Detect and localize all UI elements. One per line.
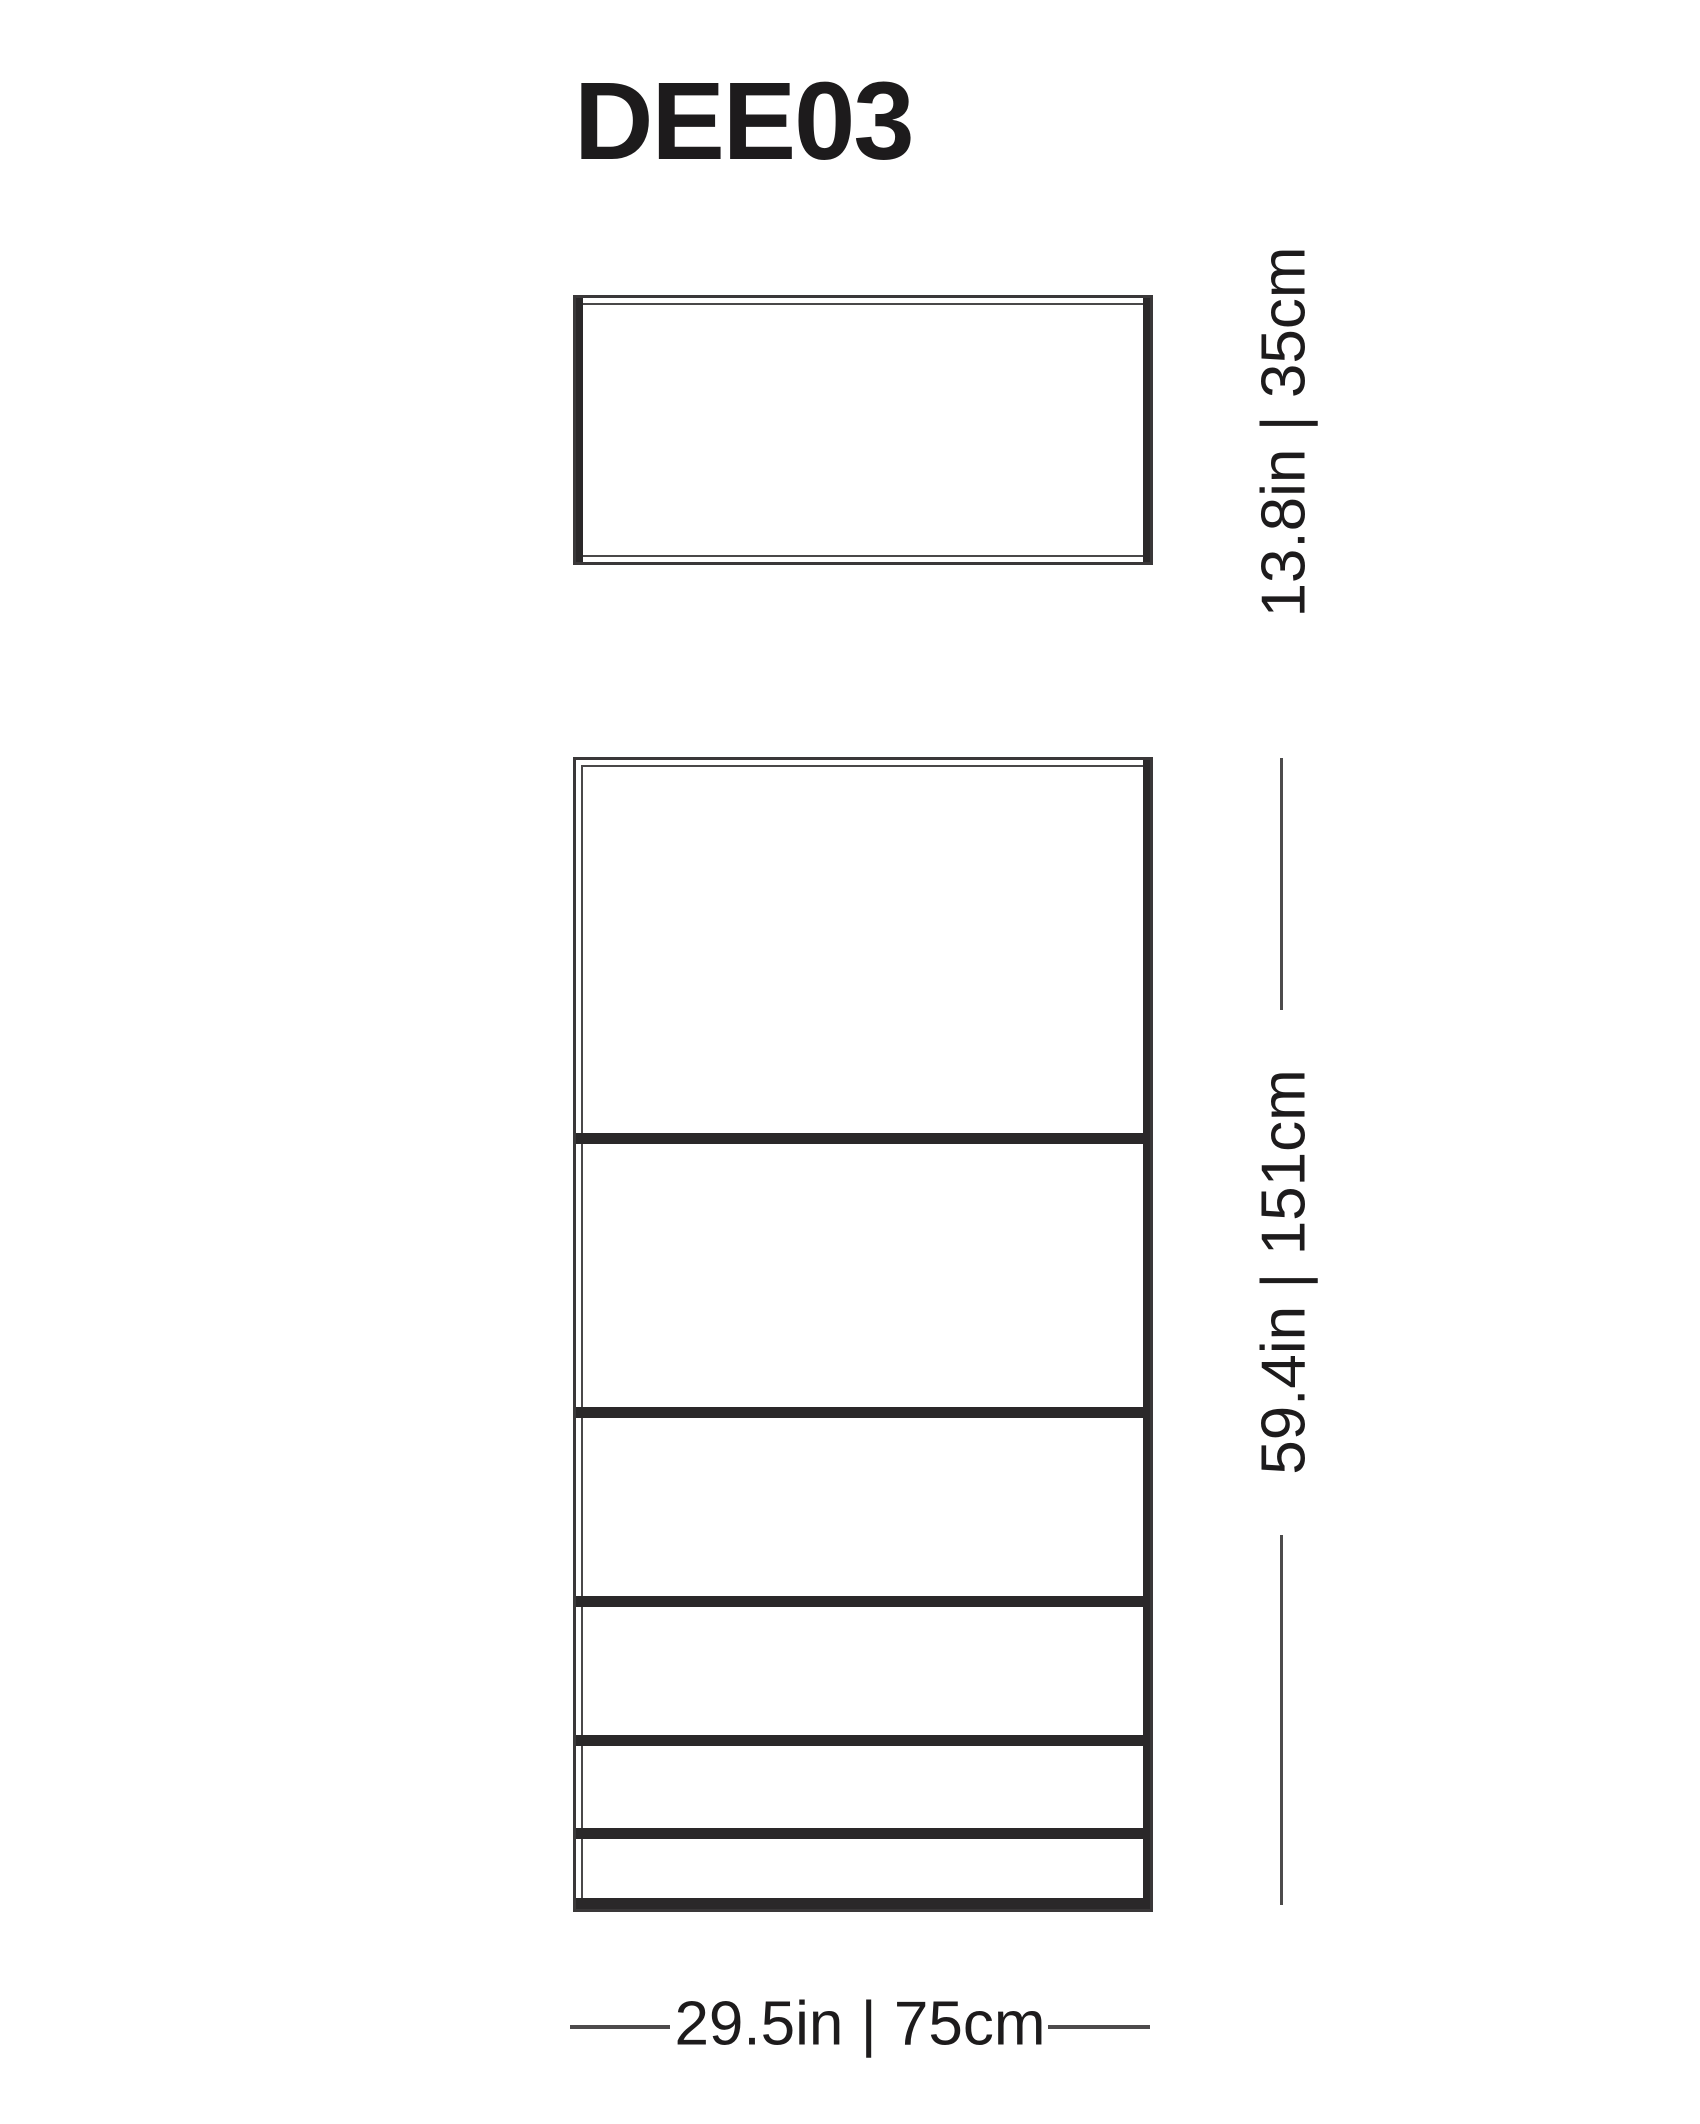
shelf-divider <box>576 1133 1150 1144</box>
top-view-left-panel <box>576 298 583 562</box>
shelf-divider <box>576 1407 1150 1418</box>
front-view-inner-rect <box>581 765 1145 1904</box>
page-title: DEE03 <box>574 58 913 185</box>
top-view-inner-top-line <box>583 303 1143 305</box>
height-dimension-line-lower <box>1280 1535 1283 1905</box>
width-dimension-dash-left <box>570 2025 670 2029</box>
width-dimension-dash-right <box>1048 2025 1150 2029</box>
shelf-divider <box>576 1596 1150 1607</box>
top-view-right-panel <box>1143 298 1150 562</box>
depth-dimension-label: 13.8in | 35cm <box>1249 246 1320 617</box>
shelf-divider <box>576 1828 1150 1839</box>
front-view <box>573 757 1153 1912</box>
top-view-inner-bottom-line <box>583 555 1143 557</box>
top-view <box>573 295 1153 565</box>
width-dimension-label: 29.5in | 75cm <box>674 1989 1045 2060</box>
drawing-canvas: DEE03 13.8in | 35cm 59.4in | 151cm 29.5i… <box>0 0 1700 2124</box>
shelf-divider <box>576 1735 1150 1746</box>
height-dimension-line-upper <box>1280 758 1283 1010</box>
shelf-divider <box>576 1898 1150 1909</box>
height-dimension-label: 59.4in | 151cm <box>1249 1069 1320 1475</box>
